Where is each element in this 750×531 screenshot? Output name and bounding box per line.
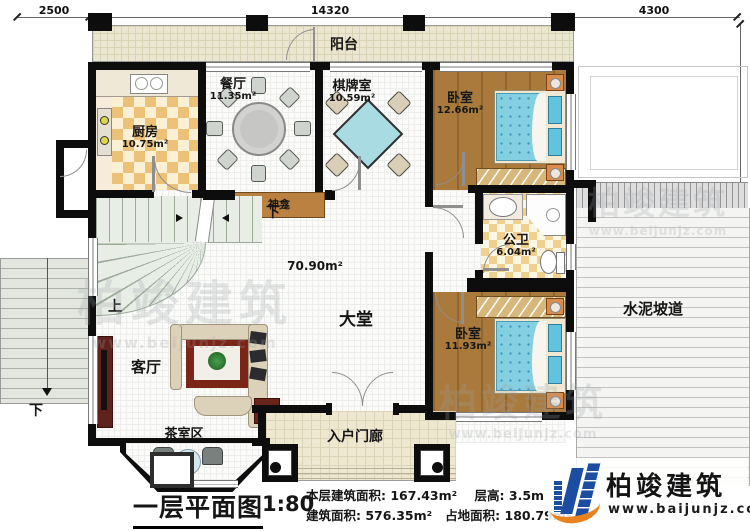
outdoor-stairs-down-label: 下 xyxy=(26,404,46,419)
nightstand xyxy=(546,392,564,409)
alcove-door-arc xyxy=(60,150,87,177)
dim-2500: 2500 xyxy=(24,4,84,17)
cement-ramp xyxy=(576,208,750,486)
outdoor-stairs xyxy=(0,258,90,404)
ramp-label: 水泥坡道 xyxy=(598,302,708,318)
stairs-down-label: 下 xyxy=(262,206,284,221)
cushion xyxy=(249,331,267,345)
brand-logo: 柏竣建筑 www.baijunjz.com xyxy=(548,458,748,530)
nightstand xyxy=(546,74,564,91)
cushion xyxy=(249,349,266,363)
sofa xyxy=(170,324,182,390)
tv xyxy=(101,350,107,410)
bathroom-area: 6.04m² xyxy=(484,248,548,259)
hall-area: 70.90m² xyxy=(275,260,355,273)
pillow xyxy=(548,96,562,124)
bedroom-bottom-area: 11.93m² xyxy=(430,342,506,353)
chair xyxy=(294,121,311,136)
brand-name: 柏竣建筑 xyxy=(606,466,726,503)
kitchen-area: 10.75m² xyxy=(105,140,185,151)
hall-label: 大堂 xyxy=(328,312,384,330)
bathroom-label: 公卫 xyxy=(486,234,546,248)
pillow xyxy=(548,324,562,352)
bedroom-top-label: 卧室 xyxy=(430,92,490,106)
plan-stats: 本层建筑面积: 167.43m² 层高: 3.5m 建筑面积: 576.35m²… xyxy=(306,486,571,526)
dining-label: 餐厅 xyxy=(205,78,261,92)
nightstand xyxy=(546,298,564,315)
pillow xyxy=(548,356,562,384)
dim-14320: 14320 xyxy=(290,4,370,17)
floor-plan-canvas: 2500 14320 4300 13180 水泥坡道 下 阳台 厨房 10.75… xyxy=(0,0,750,531)
plant xyxy=(208,352,226,370)
corner-column xyxy=(150,452,194,488)
stats-line-1: 本层建筑面积: 167.43m² 层高: 3.5m xyxy=(306,486,571,506)
mahjong-label: 棋牌室 xyxy=(310,80,394,94)
plan-title: 一层平面图 xyxy=(133,488,263,529)
balcony-label: 阳台 xyxy=(318,38,370,53)
brand-logo-icon xyxy=(550,462,602,522)
chair xyxy=(206,121,223,136)
bedroom-bottom-label: 卧室 xyxy=(438,328,498,342)
dim-4300: 4300 xyxy=(614,4,694,17)
brand-website: www.baijunjz.com xyxy=(608,502,750,517)
pillow xyxy=(548,128,562,156)
down-arrow xyxy=(42,388,52,396)
sofa xyxy=(194,396,252,416)
nightstand xyxy=(546,164,564,181)
stairs-up-label: 上 xyxy=(104,300,126,315)
mahjong-area: 10.59m² xyxy=(312,94,392,105)
bath-sink xyxy=(489,197,517,217)
chair xyxy=(251,165,266,182)
bedroom-top-area: 12.66m² xyxy=(424,106,496,117)
living-label: 客厅 xyxy=(118,360,174,376)
stats-line-2: 建筑面积: 576.35m² 占地面积: 180.79m² xyxy=(306,506,571,526)
top-dimension-line xyxy=(16,17,740,18)
ramp-hatch-band xyxy=(576,182,748,210)
dining-area: 11.35m² xyxy=(200,92,266,103)
cushion xyxy=(249,367,267,382)
tea-chair xyxy=(202,447,223,465)
sofa xyxy=(178,324,256,340)
kitchen-label: 厨房 xyxy=(117,126,173,140)
tea-area-label: 茶室区 xyxy=(146,428,222,442)
porch-label: 入户门廊 xyxy=(300,430,410,445)
